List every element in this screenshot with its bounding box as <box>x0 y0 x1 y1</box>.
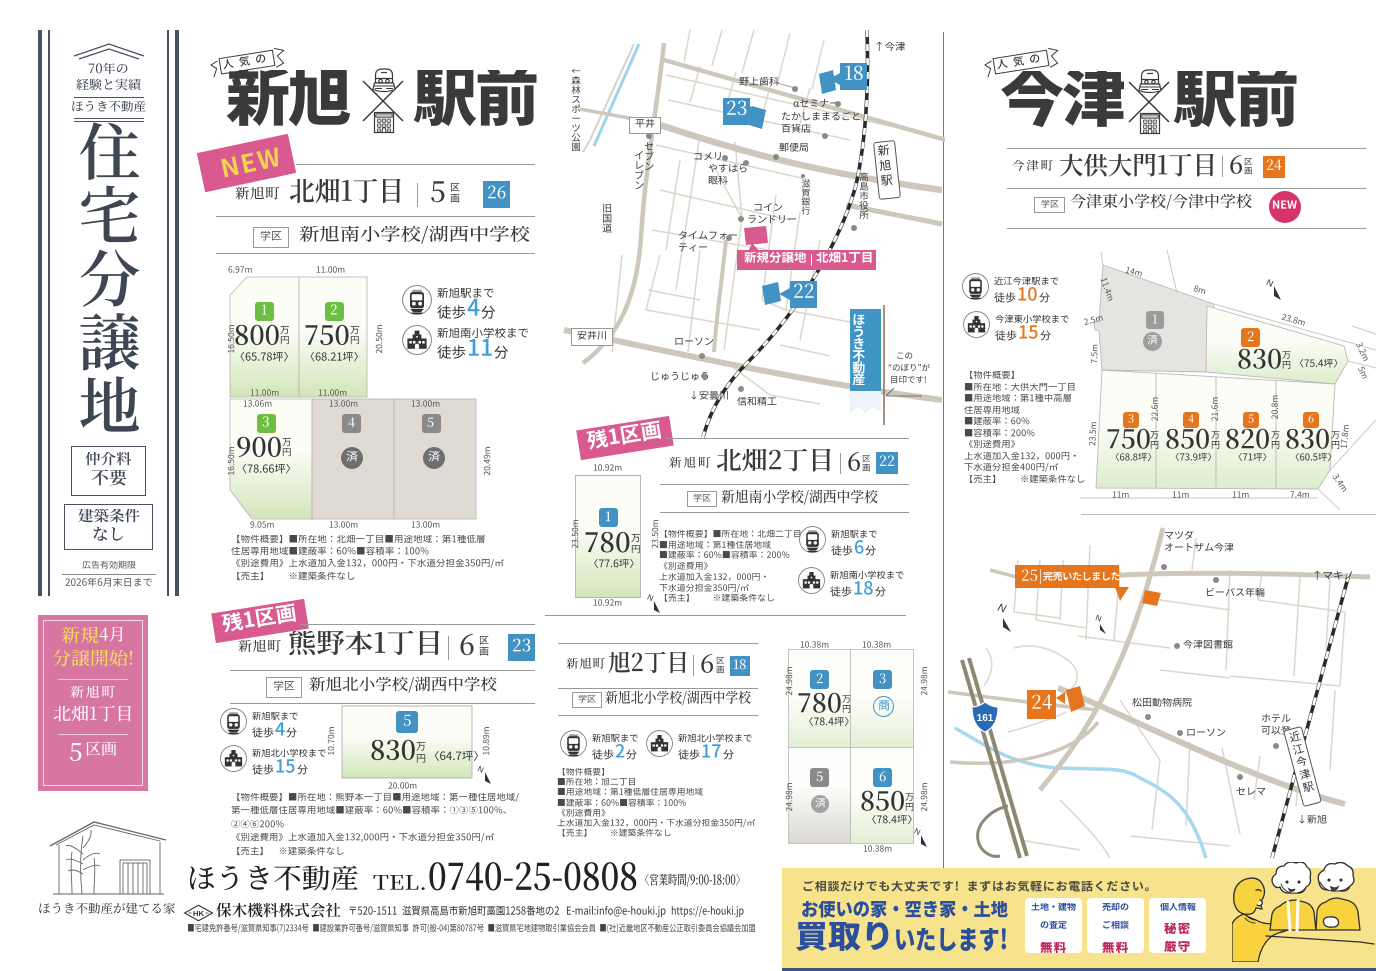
svg-text:N: N <box>914 827 922 838</box>
svg-text:161: 161 <box>977 713 994 724</box>
svg-text:N: N <box>647 593 655 604</box>
svg-text:N: N <box>476 764 485 775</box>
svg-text:N: N <box>1094 613 1103 624</box>
svg-text:N: N <box>996 602 1007 616</box>
svg-text:HK: HK <box>193 909 205 918</box>
svg-text:N: N <box>1265 277 1275 289</box>
